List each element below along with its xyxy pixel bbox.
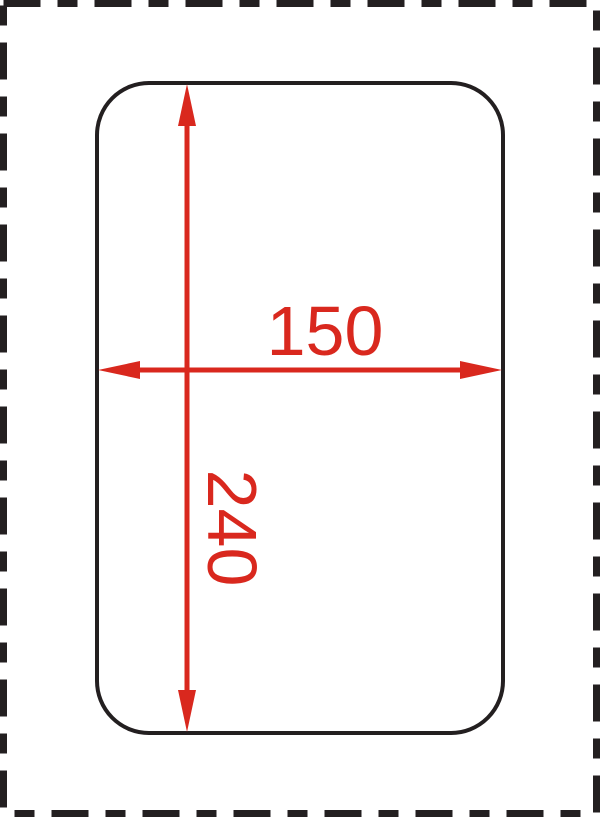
height-dimension-label-group: 240: [193, 470, 271, 587]
width-dimension-label: 150: [267, 292, 384, 370]
height-dimension-arrow: [178, 84, 196, 732]
arrowhead-right-icon: [460, 361, 502, 379]
drawing-canvas: 150 240: [0, 0, 600, 817]
arrowhead-down-icon: [178, 690, 196, 732]
dimension-drawing: 150 240: [0, 0, 600, 817]
outer-dashed-border: [4, 4, 597, 814]
height-dimension-label: 240: [193, 470, 271, 587]
rounded-rectangle-outline: [97, 83, 503, 733]
arrowhead-up-icon: [178, 84, 196, 126]
arrowhead-left-icon: [98, 361, 140, 379]
